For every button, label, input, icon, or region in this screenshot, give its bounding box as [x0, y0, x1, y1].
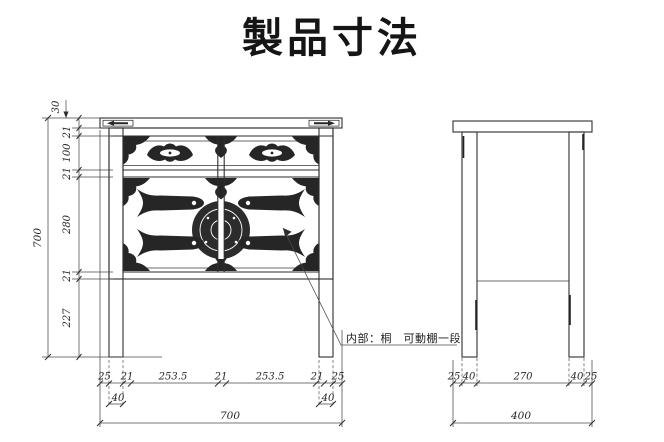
drawer-handle: [249, 144, 295, 162]
side-leg-left: [462, 132, 477, 357]
side-leg-right: [569, 132, 584, 357]
tick-marks: [106, 401, 336, 407]
stile-ornament: [205, 137, 237, 159]
front-view: 内部：桐 可動棚一段: [100, 118, 461, 357]
side-dim-0: 25: [447, 372, 461, 383]
dim-height-0: 21: [62, 126, 73, 140]
dim-height-1: 100: [62, 143, 73, 163]
leader-line: [283, 228, 457, 345]
dim-width-3: 21: [214, 372, 228, 383]
dim-width-1: 21: [120, 372, 134, 383]
stile-ornament: [205, 178, 237, 200]
cap-arrow-right-icon: [314, 121, 335, 126]
dim-left-leg-width: 40: [111, 393, 125, 404]
drawer-handle: [147, 144, 193, 162]
wood-grain-marks: [464, 134, 584, 442]
dim-total-width: 700: [220, 410, 240, 422]
side-dim-2: 270: [512, 372, 533, 383]
drawing-sheet: 製品寸法: [0, 0, 664, 442]
front-hardware: [123, 137, 319, 272]
cap-arrow-left-icon: [107, 121, 128, 126]
dim-total-height: 700: [32, 228, 44, 248]
dim-top-thickness: 30: [51, 100, 62, 113]
dim-width-0: 25: [97, 372, 111, 383]
side-dim-4: 25: [584, 372, 598, 383]
side-width-dimensions: 25 40 270 40 25 400: [447, 358, 598, 427]
dim-height-5: 227: [62, 308, 73, 329]
lock-plate: [192, 201, 250, 259]
dim-width-5: 21: [310, 372, 324, 383]
side-dim-total: 400: [510, 410, 531, 422]
dim-height-2: 21: [62, 167, 73, 181]
dim-height-4: 21: [62, 269, 73, 283]
side-view: [453, 121, 592, 442]
side-top-board: [453, 121, 592, 132]
dim-right-leg-width: 40: [321, 393, 335, 404]
front-leg-left: [109, 128, 123, 357]
front-leg-right: [319, 128, 333, 357]
dim-height-3: 280: [62, 214, 73, 235]
side-dim-1: 40: [462, 372, 476, 383]
annotation-label: 内部：桐 可動棚一段: [346, 331, 461, 345]
dim-arrow-icon: [63, 112, 68, 119]
dim-width-6: 25: [331, 372, 345, 383]
dim-width-2: 253.5: [158, 372, 188, 383]
technical-drawing: 内部：桐 可動棚一段 30 21: [0, 0, 664, 442]
side-dim-3: 40: [570, 372, 584, 383]
top-board: [100, 118, 342, 128]
dim-width-4: 253.5: [255, 372, 285, 383]
annotation-leader: [283, 228, 457, 345]
